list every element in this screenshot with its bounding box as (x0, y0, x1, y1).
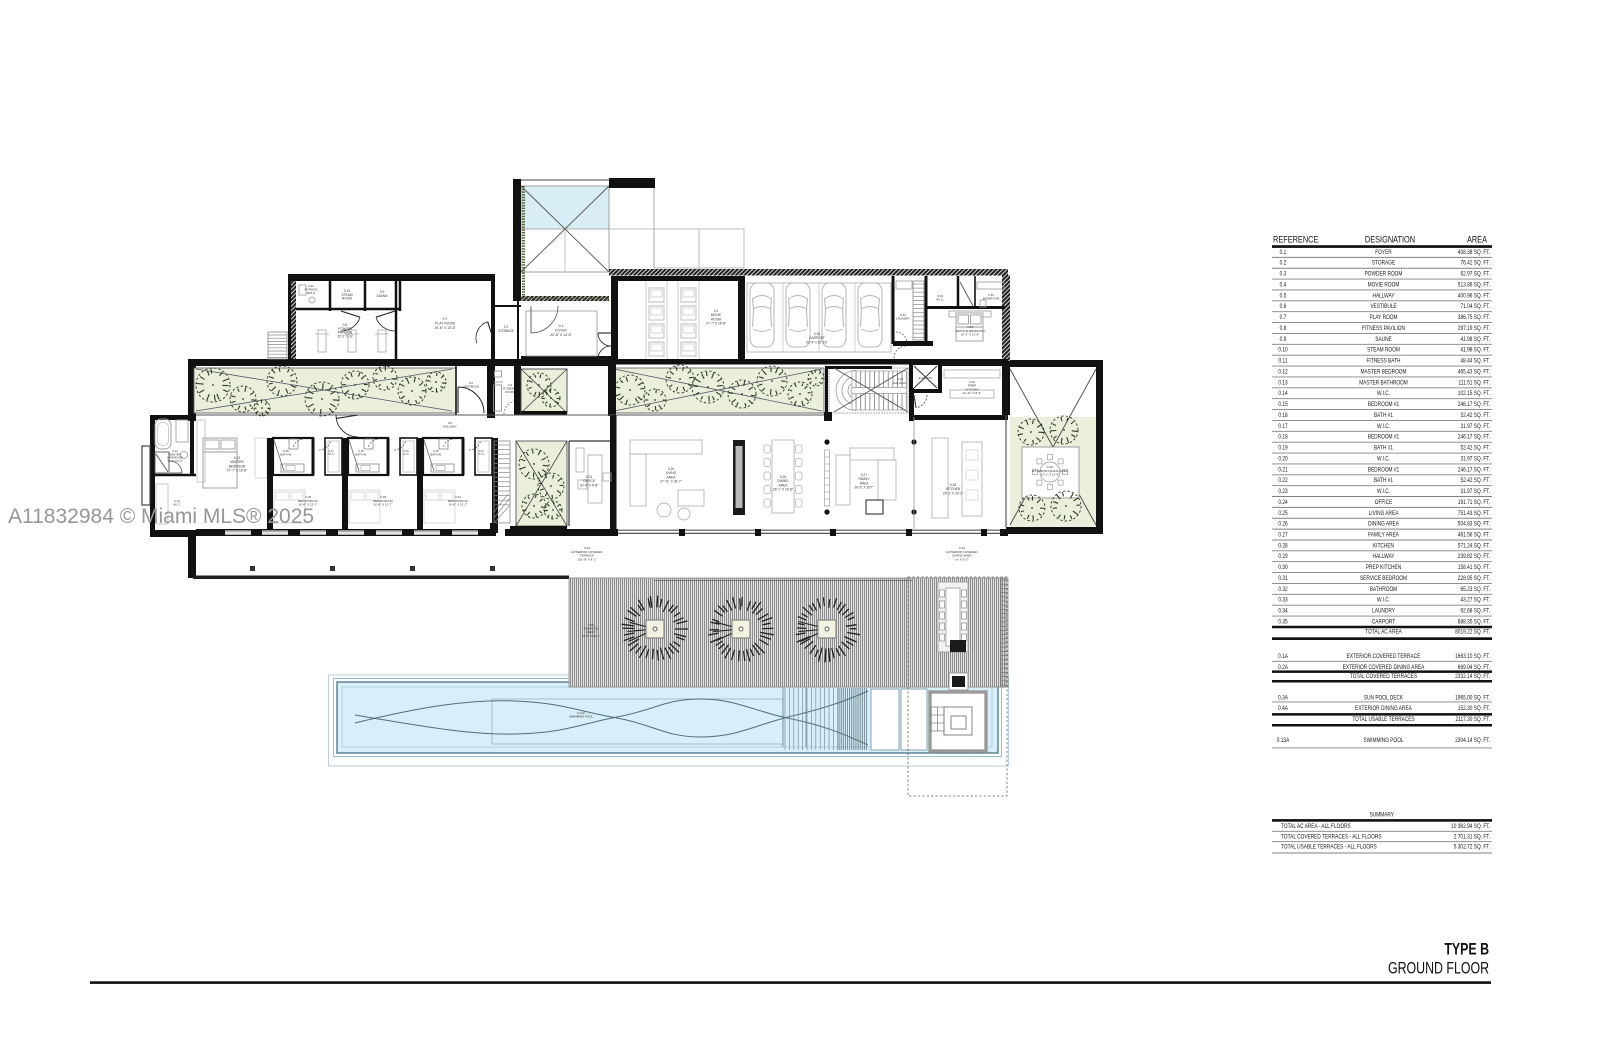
svg-text:VESTIBULE: VESTIBULE (463, 385, 480, 389)
svg-text:BATH #1: BATH #1 (1374, 413, 1393, 420)
svg-text:0.30: 0.30 (1278, 565, 1287, 572)
svg-text:2304.14 SQ. FT.: 2304.14 SQ. FT. (1455, 738, 1490, 745)
svg-text:246.17 SQ. FT.: 246.17 SQ. FT. (1458, 467, 1491, 474)
svg-text:0.32: 0.32 (1278, 586, 1287, 593)
svg-text:32'-4" x 20'-10": 32'-4" x 20'-10" (806, 340, 827, 344)
svg-text:BATH: BATH (307, 291, 315, 295)
svg-text:SAUNA: SAUNA (377, 294, 389, 298)
svg-text:751.43 SQ. FT.: 751.43 SQ. FT. (1458, 510, 1491, 517)
svg-text:W.I.C.: W.I.C. (402, 452, 409, 456)
svg-text:0.16: 0.16 (1278, 413, 1287, 420)
svg-text:0.26: 0.26 (1278, 521, 1287, 528)
svg-text:POWDER ROOM: POWDER ROOM (1365, 271, 1403, 278)
svg-text:SUMMARY: SUMMARY (1370, 812, 1395, 819)
svg-text:0.2A: 0.2A (1278, 665, 1288, 672)
svg-text:W.I.C.: W.I.C. (936, 297, 944, 301)
svg-text:0.15: 0.15 (1278, 402, 1287, 409)
svg-text:0.27: 0.27 (1278, 532, 1287, 539)
svg-text:1965.00 SQ. FT.: 1965.00 SQ. FT. (1455, 695, 1490, 702)
svg-text:571.24 SQ. FT.: 571.24 SQ. FT. (1458, 543, 1491, 550)
svg-text:0.1A: 0.1A (1278, 654, 1288, 661)
svg-text:REFERENCE: REFERENCE (1273, 234, 1319, 245)
svg-text:0.10: 0.10 (1278, 347, 1287, 354)
svg-text:0.8: 0.8 (1280, 326, 1287, 333)
svg-text:EXTERIOR COVERED TERRACE: EXTERIOR COVERED TERRACE (1347, 654, 1421, 661)
svg-text:26'-1" X 16'-8": 26'-1" X 16'-8" (773, 488, 793, 492)
svg-text:0.23: 0.23 (1278, 489, 1287, 496)
svg-text:27'-7" X 16'-8": 27'-7" X 16'-8" (227, 469, 247, 473)
svg-text:8019.22 SQ. FT.: 8019.22 SQ. FT. (1455, 629, 1490, 636)
svg-text:0.6: 0.6 (1280, 304, 1287, 311)
svg-text:TOTAL USABLE TERRACES: TOTAL USABLE TERRACES (1352, 717, 1415, 724)
svg-text:SWIMMING POOL: SWIMMING POOL (569, 715, 594, 719)
svg-text:0.3: 0.3 (1280, 271, 1287, 278)
svg-text:26'-5" X 16'7": 26'-5" X 16'7" (854, 486, 873, 490)
svg-text:W.I.C.: W.I.C. (1377, 391, 1390, 398)
svg-text:246.17 SQ. FT.: 246.17 SQ. FT. (1458, 402, 1491, 409)
svg-text:0.28: 0.28 (1278, 543, 1287, 550)
svg-text:AREA: AREA (1467, 234, 1487, 245)
svg-text:CARPORT: CARPORT (1372, 619, 1396, 626)
svg-text:22'-2" X 32: 22'-2" X 32 (337, 334, 353, 338)
svg-text:TOTAL AC AREA: TOTAL AC AREA (1365, 629, 1402, 636)
svg-text:HALLWAY: HALLWAY (443, 425, 457, 429)
svg-text:62.97 SQ. FT.: 62.97 SQ. FT. (1460, 271, 1490, 278)
svg-text:MASTER BATHROOM: MASTER BATHROOM (1359, 380, 1408, 387)
svg-text:PREP KITCHEN: PREP KITCHEN (1366, 565, 1401, 572)
svg-text:W.I.C.: W.I.C. (1377, 489, 1390, 496)
svg-text:FOYER: FOYER (1375, 249, 1392, 256)
svg-text:BATH #1: BATH #1 (280, 452, 292, 456)
svg-text:246.17 SQ. FT.: 246.17 SQ. FT. (1458, 434, 1491, 441)
svg-text:13'-7" X 6'-2": 13'-7" X 6'-2" (167, 459, 183, 463)
svg-text:71.04 SQ. FT.: 71.04 SQ. FT. (1460, 304, 1490, 311)
svg-text:75'-6" X 25'-1": 75'-6" X 25'-1" (582, 634, 600, 638)
svg-text:STEAM ROOM: STEAM ROOM (1367, 347, 1400, 354)
svg-text:52.42 SQ. FT.: 52.42 SQ. FT. (1460, 413, 1490, 420)
svg-text:W.I.C.: W.I.C. (1377, 597, 1390, 604)
svg-text:ELEVATOR: ELEVATOR (919, 376, 933, 380)
svg-text:513.86 SQ. FT.: 513.86 SQ. FT. (1458, 282, 1491, 289)
svg-text:BATH #1: BATH #1 (430, 452, 442, 456)
svg-text:LIVING AREA: LIVING AREA (1369, 510, 1399, 517)
svg-text:BATH #1: BATH #1 (1374, 478, 1393, 485)
svg-text:SAUNE: SAUNE (1375, 336, 1392, 343)
svg-text:BATH #1: BATH #1 (355, 452, 367, 456)
svg-text:16'-8" X 13'-7": 16'-8" X 13'-7" (449, 503, 468, 507)
svg-text:STORAGE: STORAGE (498, 329, 514, 333)
svg-text:TOTAL USABLE TERRACES - ALL FL: TOTAL USABLE TERRACES - ALL FLOORS (1281, 844, 1377, 851)
svg-text:16'-8" X 13'-7": 16'-8" X 13'-7" (374, 503, 393, 507)
svg-text:BEDROOM #1: BEDROOM #1 (1368, 467, 1399, 474)
svg-text:2332.14 SQ. FT.: 2332.14 SQ. FT. (1455, 674, 1490, 681)
svg-text:26'-1" X 22'-2": 26'-1" X 22'-2" (943, 491, 963, 495)
svg-text:0.9: 0.9 (1280, 336, 1287, 343)
svg-text:76.42 SQ. FT.: 76.42 SQ. FT. (1460, 260, 1490, 267)
svg-text:LAUNDRY: LAUNDRY (1372, 608, 1395, 615)
svg-text:BATHROOM: BATHROOM (983, 296, 1000, 300)
svg-text:STORAGE: STORAGE (1372, 260, 1396, 267)
svg-text:KITCHEN: KITCHEN (1373, 543, 1394, 550)
svg-text:102.15 SQ. FT.: 102.15 SQ. FT. (1458, 391, 1491, 398)
svg-text:0.18: 0.18 (1278, 434, 1287, 441)
svg-text:191.71 SQ. FT.: 191.71 SQ. FT. (1458, 499, 1491, 506)
svg-text:BEDROOM #1: BEDROOM #1 (1368, 434, 1399, 441)
svg-text:SERVICE BEDROOM: SERVICE BEDROOM (1360, 576, 1407, 583)
svg-text:2117.30 SQ. FT.: 2117.30 SQ. FT. (1455, 717, 1490, 724)
svg-text:43.27 SQ. FT.: 43.27 SQ. FT. (1460, 597, 1490, 604)
svg-text:27'-11" X 26'-7": 27'-11" X 26'-7" (660, 480, 682, 484)
svg-text:TOTAL COVERED TERRACES: TOTAL COVERED TERRACES (1350, 674, 1418, 681)
svg-text:0.2: 0.2 (1280, 260, 1287, 267)
svg-text:239.82 SQ. FT.: 239.82 SQ. FT. (1458, 554, 1491, 561)
svg-text:400.96 SQ. FT.: 400.96 SQ. FT. (1458, 293, 1491, 300)
svg-text:52.42 SQ. FT.: 52.42 SQ. FT. (1460, 478, 1490, 485)
svg-text:0.4A: 0.4A (1278, 706, 1288, 713)
svg-text:0.17: 0.17 (1278, 423, 1287, 430)
svg-text:MASTER BEDROOM: MASTER BEDROOM (1360, 369, 1406, 376)
svg-text:2 701.31 SQ. FT.: 2 701.31 SQ. FT. (1454, 834, 1491, 841)
svg-text:669.04 SQ. FT.: 669.04 SQ. FT. (1458, 665, 1491, 672)
svg-text:ROOM: ROOM (505, 390, 515, 394)
svg-text:HALLWAY: HALLWAY (1372, 554, 1394, 561)
svg-text:W.I.C.: W.I.C. (327, 452, 334, 456)
svg-text:0.13A: 0.13A (1277, 738, 1290, 745)
svg-text:0.35: 0.35 (1278, 619, 1287, 626)
svg-text:0.11: 0.11 (1279, 358, 1288, 365)
svg-text:MOVIE ROOM: MOVIE ROOM (1368, 282, 1400, 289)
svg-text:41.98 SQ. FT.: 41.98 SQ. FT. (1460, 336, 1490, 343)
svg-text:10'-2" X 11'-9": 10'-2" X 11'-9" (961, 333, 980, 337)
svg-text:0.21: 0.21 (1278, 467, 1287, 474)
svg-text:TOTAL AC AREA - ALL FLOORS: TOTAL AC AREA - ALL FLOORS (1281, 823, 1351, 830)
svg-text:EXTERIOR DINING AREA: EXTERIOR DINING AREA (1355, 706, 1412, 713)
svg-text:31.97 SQ. FT.: 31.97 SQ. FT. (1460, 489, 1490, 496)
svg-text:0.20: 0.20 (1278, 456, 1287, 463)
svg-text:20'-8" X 14'-5": 20'-8" X 14'-5" (550, 333, 572, 337)
svg-text:0.13: 0.13 (1278, 380, 1287, 387)
svg-text:BATHROOM: BATHROOM (1370, 586, 1398, 593)
svg-text:158.41 SQ. FT.: 158.41 SQ. FT. (1458, 565, 1491, 572)
svg-text:0.29: 0.29 (1278, 554, 1287, 561)
svg-text:DINING AREA: DINING AREA (1368, 521, 1399, 528)
svg-text:0.22: 0.22 (1278, 478, 1287, 485)
svg-text:DESIGNATION: DESIGNATION (1365, 234, 1415, 245)
svg-text:31.97 SQ. FT.: 31.97 SQ. FT. (1460, 456, 1490, 463)
svg-text:19'-6" X 15'-8": 19'-6" X 15'-8" (434, 326, 456, 330)
svg-text:0.12: 0.12 (1278, 369, 1287, 376)
svg-text:504.83 SQ. FT.: 504.83 SQ. FT. (1458, 521, 1491, 528)
svg-text:111.51 SQ. FT.: 111.51 SQ. FT. (1458, 380, 1490, 387)
svg-text:41.98 SQ. FT.: 41.98 SQ. FT. (1460, 347, 1490, 354)
svg-text:465.43 SQ. FT.: 465.43 SQ. FT. (1458, 369, 1491, 376)
svg-text:0.14: 0.14 (1278, 391, 1287, 398)
svg-text:0.1: 0.1 (559, 324, 564, 328)
svg-text:0.5: 0.5 (1280, 293, 1287, 300)
svg-text:W.I.C.: W.I.C. (1377, 423, 1390, 430)
svg-text:BEDROOM #1: BEDROOM #1 (1368, 402, 1399, 409)
svg-text:FITNESS PAVILION: FITNESS PAVILION (1362, 326, 1405, 333)
svg-text:FAMILY AREA: FAMILY AREA (1368, 532, 1399, 539)
svg-text:FITNESS BATH: FITNESS BATH (1367, 358, 1401, 365)
svg-text:12'-11" X 8'-4": 12'-11" X 8'-4" (963, 391, 982, 395)
svg-text:65.23 SQ. FT.: 65.23 SQ. FT. (1460, 586, 1490, 593)
svg-text:VESTIBULE: VESTIBULE (1370, 304, 1397, 311)
svg-text:HALLWAY: HALLWAY (893, 381, 907, 385)
svg-text:HALLWAY: HALLWAY (1372, 293, 1394, 300)
svg-text:13'-1" X 11'-6": 13'-1" X 11'-6" (1041, 473, 1060, 477)
svg-text:92.68 SQ. FT.: 92.68 SQ. FT. (1460, 608, 1490, 615)
svg-text:0.7: 0.7 (443, 317, 448, 321)
svg-text:BATH #1: BATH #1 (1374, 445, 1393, 452)
svg-text:TYPE B: TYPE B (1444, 941, 1489, 959)
svg-text:5 302.72 SQ. FT.: 5 302.72 SQ. FT. (1454, 844, 1491, 851)
svg-text:xx' X 9'-2": xx' X 9'-2" (955, 557, 968, 561)
svg-text:297.19 SQ. FT.: 297.19 SQ. FT. (1458, 326, 1491, 333)
svg-text:408.38 SQ. FT.: 408.38 SQ. FT. (1458, 249, 1491, 256)
svg-text:A11832984 © Miami MLS® 2025: A11832984 © Miami MLS® 2025 (8, 505, 314, 528)
svg-text:386.75 SQ. FT.: 386.75 SQ. FT. (1458, 315, 1491, 322)
svg-text:688.35 SQ. FT.: 688.35 SQ. FT. (1458, 619, 1491, 626)
svg-text:SWIMMING POOL: SWIMMING POOL (1363, 738, 1403, 745)
svg-text:PLAY ROOM: PLAY ROOM (435, 321, 455, 325)
svg-text:48.44 SQ. FT.: 48.44 SQ. FT. (1460, 358, 1490, 365)
svg-text:0.25: 0.25 (1278, 510, 1287, 517)
svg-text:GROUND FLOOR: GROUND FLOOR (1388, 960, 1489, 978)
svg-text:0.24: 0.24 (1278, 499, 1287, 506)
svg-text:TOTAL COVERED TERRACES - ALL F: TOTAL COVERED TERRACES - ALL FLOORS (1281, 834, 1382, 841)
svg-text:PLAY ROOM: PLAY ROOM (1369, 315, 1397, 322)
svg-text:0.34: 0.34 (1278, 608, 1287, 615)
svg-text:27'-7" X 18'-8": 27'-7" X 18'-8" (706, 322, 726, 326)
svg-text:SUN POOL DECK: SUN POOL DECK (1364, 695, 1404, 702)
svg-text:W.I.C.: W.I.C. (1377, 456, 1390, 463)
svg-text:0.1: 0.1 (1280, 249, 1287, 256)
svg-text:52.42 SQ. FT.: 52.42 SQ. FT. (1460, 445, 1490, 452)
svg-text:10 362.94 SQ. FT.: 10 362.94 SQ. FT. (1451, 823, 1490, 830)
svg-text:152.30 SQ. FT.: 152.30 SQ. FT. (1458, 706, 1491, 713)
svg-text:0.3A: 0.3A (1278, 695, 1288, 702)
svg-text:EXTERIOR COVERED DINING AREA: EXTERIOR COVERED DINING AREA (1343, 665, 1425, 672)
svg-text:W.I.C.: W.I.C. (477, 452, 484, 456)
svg-text:ROOM: ROOM (342, 297, 352, 301)
svg-text:228.95 SQ. FT.: 228.95 SQ. FT. (1458, 576, 1491, 583)
svg-text:31.97 SQ. FT.: 31.97 SQ. FT. (1460, 423, 1490, 430)
svg-text:LAUNDRY: LAUNDRY (896, 317, 910, 321)
svg-text:0.19: 0.19 (1278, 445, 1287, 452)
svg-text:461.56 SQ. FT.: 461.56 SQ. FT. (1458, 532, 1491, 539)
svg-text:0.4: 0.4 (1280, 282, 1287, 289)
svg-text:0.31: 0.31 (1278, 576, 1287, 583)
svg-text:OFFICE: OFFICE (1375, 499, 1393, 506)
svg-text:161'-8" X 9'-2": 161'-8" X 9'-2" (578, 557, 597, 561)
svg-text:1663.10 SQ. FT.: 1663.10 SQ. FT. (1455, 654, 1490, 661)
svg-text:20'-4" X 9'-8": 20'-4" X 9'-8" (580, 483, 598, 487)
svg-text:0.33: 0.33 (1278, 597, 1287, 604)
svg-text:0.7: 0.7 (1280, 315, 1287, 322)
svg-text:FOYER: FOYER (555, 328, 567, 332)
